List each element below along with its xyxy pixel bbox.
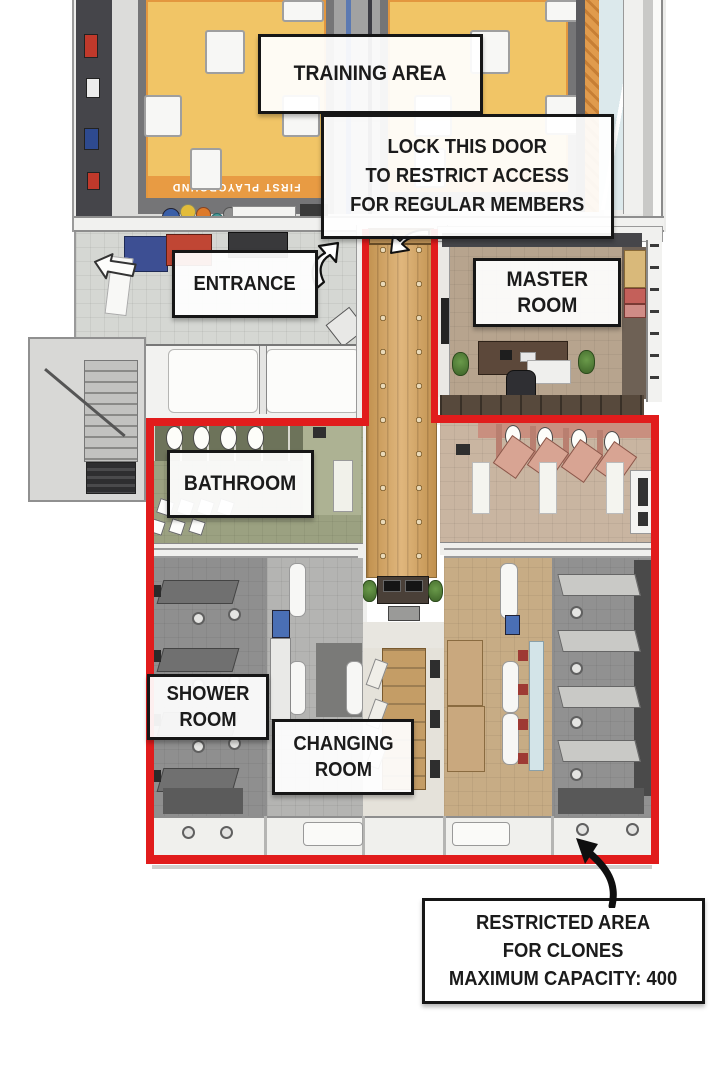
shower-drain [192, 612, 205, 625]
label-changing-room: CHANGING ROOM [272, 719, 414, 795]
dispenser [456, 444, 470, 455]
wall-stub [264, 816, 267, 856]
building-right-edge [653, 0, 663, 222]
divider-wall [444, 548, 652, 558]
divider-wall [150, 548, 358, 558]
bath-rug [472, 462, 490, 514]
label-training-area: TRAINING AREA [258, 34, 483, 114]
shower-drain [570, 768, 583, 781]
plant [428, 580, 443, 602]
plant [362, 580, 377, 602]
restricted-arrow-icon [558, 828, 620, 908]
tan-bench [447, 706, 485, 772]
window-pane [643, 0, 653, 218]
mat-pad [190, 148, 222, 190]
dispenser [313, 427, 326, 438]
shower-stall [557, 740, 640, 762]
stair-landing-dark [86, 462, 136, 494]
mats-divider-wall [259, 346, 267, 414]
label-bathroom: BATHROOM [167, 450, 314, 518]
vanity-item [518, 684, 528, 695]
label-line: CHANGING [293, 731, 393, 757]
master-window-slats [650, 244, 659, 398]
shower-drain [570, 716, 583, 729]
shower-stall [557, 574, 640, 596]
shelf-boxes [624, 304, 646, 318]
label-master-room: MASTER ROOM [473, 258, 621, 327]
floor-dot [626, 823, 639, 836]
shower-stall [157, 580, 240, 604]
gear-item [430, 660, 440, 678]
label-line: MASTER [506, 267, 588, 293]
wall-stub [443, 816, 446, 856]
gear-item [430, 760, 440, 778]
shower-dark-mat [558, 788, 644, 814]
floor-dot [182, 826, 195, 839]
label-line: BATHROOM [184, 471, 296, 497]
desk-item [500, 350, 512, 360]
poster [84, 34, 98, 58]
desk-monitor [383, 580, 401, 592]
restricted-outline-left [146, 418, 154, 863]
bath-rug [606, 462, 624, 514]
shower-drain [570, 606, 583, 619]
label-line: TO RESTRICT ACCESS [350, 162, 584, 191]
bench [289, 661, 306, 715]
shower-dark-mat [163, 788, 243, 814]
vanity-item [518, 719, 528, 730]
bath-mat [333, 460, 353, 512]
corridor-end-table [388, 606, 420, 621]
restricted-outline-bathroom-top [146, 418, 369, 426]
label-line: TRAINING AREA [294, 61, 447, 87]
bench [289, 563, 306, 617]
vanity-item [518, 650, 528, 661]
label-line: ROOM [167, 707, 250, 733]
label-line: RESTRICTED AREA [449, 909, 677, 937]
desk-monitor [405, 580, 423, 592]
corridor-end-floor [356, 622, 446, 648]
bottom-bench [452, 822, 510, 846]
wall-panel-dark [638, 512, 648, 526]
shower-drain [192, 740, 205, 753]
plant [578, 350, 595, 374]
vanity-item [518, 753, 528, 764]
mat-banner-band: FIRST PLAYGROUND [148, 176, 324, 198]
shower-drain [228, 608, 241, 621]
bath-rug [539, 462, 557, 514]
label-line: FOR CLONES [449, 937, 677, 965]
poster [87, 172, 100, 190]
restricted-outline-right [651, 415, 659, 863]
shelf-boxes [624, 288, 646, 304]
blue-locker [272, 610, 290, 638]
bench [346, 661, 363, 715]
toilet [193, 426, 210, 450]
floor-plan-canvas: FIRST PLAYGROUND [0, 0, 720, 1080]
label-line: ENTRANCE [194, 271, 296, 297]
floor-dot [220, 826, 233, 839]
bottom-bench [303, 822, 363, 846]
bench [500, 563, 518, 619]
tan-bench [447, 640, 483, 706]
white-mat [266, 349, 360, 413]
shower-stall [557, 630, 640, 652]
restricted-outline-corridor-right [431, 229, 438, 421]
toilet [247, 426, 264, 450]
restricted-outline-corridor-left [362, 229, 369, 425]
label-line: ROOM [506, 293, 588, 319]
label-line: FOR REGULAR MEMBERS [350, 191, 584, 220]
white-mat [168, 349, 258, 413]
plant [452, 352, 469, 376]
shelf-boxes [624, 250, 646, 288]
master-sofa-band [440, 395, 644, 415]
label-lock-door: LOCK THIS DOOR TO RESTRICT ACCESS FOR RE… [321, 114, 614, 239]
master-tv [441, 298, 449, 344]
toilet [166, 426, 183, 450]
blue-item [505, 615, 520, 635]
corridor-wood-floor [366, 233, 437, 578]
label-restricted-area: RESTRICTED AREA FOR CLONES MAXIMUM CAPAC… [422, 898, 705, 1004]
label-line: MAXIMUM CAPACITY: 400 [449, 965, 677, 993]
wall-stub [551, 816, 554, 856]
mat-pad [282, 0, 324, 22]
label-line: LOCK THIS DOOR [350, 133, 584, 162]
locker-column [270, 638, 291, 720]
shower-drain [570, 662, 583, 675]
label-shower-room: SHOWER ROOM [147, 674, 269, 740]
window-frame [623, 0, 645, 214]
mat-pad [144, 95, 182, 137]
label-entrance: ENTRANCE [172, 250, 318, 318]
label-line: SHOWER [167, 681, 250, 707]
toilet [220, 426, 237, 450]
mat-pad [205, 30, 245, 74]
gear-item [430, 710, 440, 728]
poster [86, 78, 100, 98]
bench [502, 713, 519, 765]
label-line: ROOM [293, 757, 393, 783]
wall-panel-dark [638, 478, 648, 506]
bench [502, 661, 519, 713]
restricted-outline-master-bottom [431, 415, 659, 423]
poster [84, 128, 99, 150]
mirror-strip [529, 641, 544, 771]
shower-stall [157, 648, 240, 672]
shower-stall [557, 686, 640, 708]
